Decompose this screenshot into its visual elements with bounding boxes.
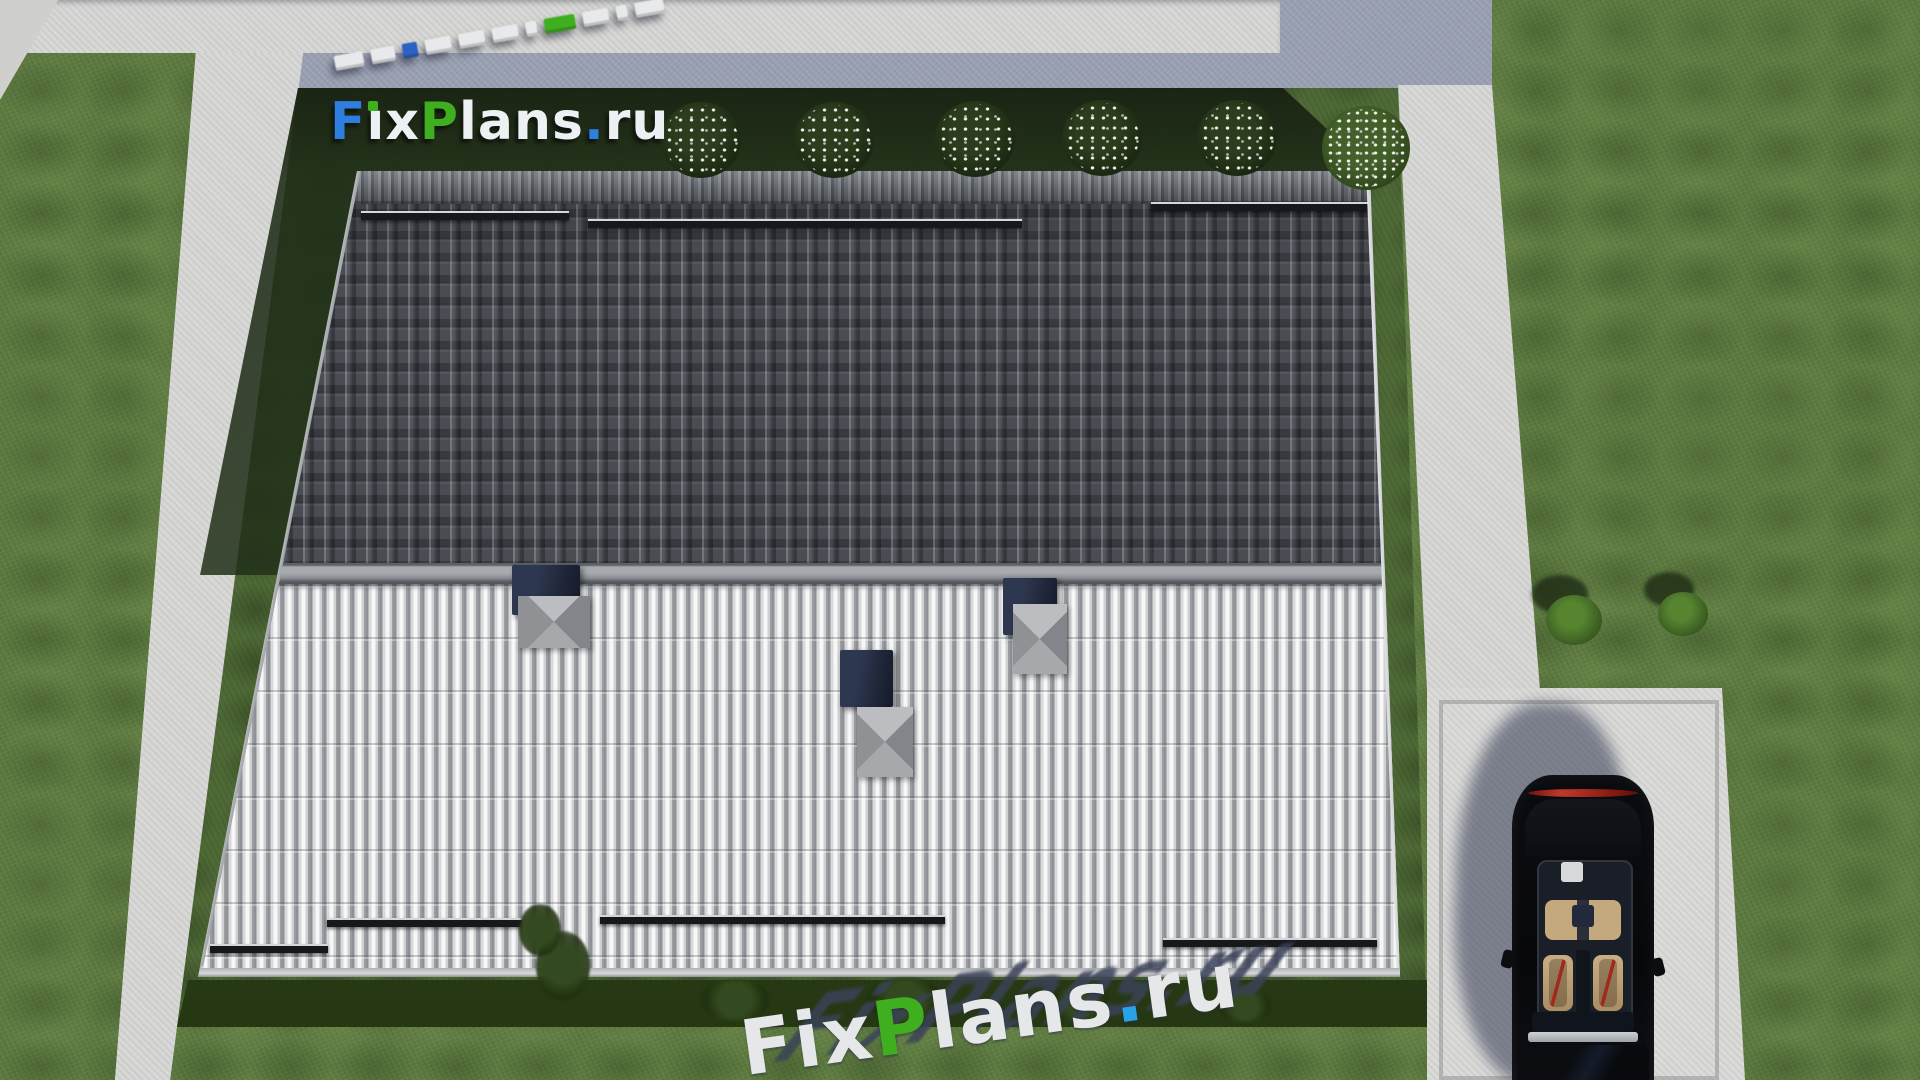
fixplans-logo: FıxPlans.ru: [330, 92, 669, 152]
snow-guard-bar: [361, 211, 569, 220]
house-roof: [198, 171, 1400, 977]
snow-guard-bar: [210, 944, 328, 953]
snow-guard-bar: [588, 219, 1022, 228]
logo-i-dot: [368, 101, 378, 111]
chimney-cap: [1013, 604, 1067, 674]
car-center-console: [1576, 950, 1590, 1020]
watermark-letter-top: [370, 46, 396, 65]
watermark-letter-top: [424, 36, 452, 55]
car-tail-lights: [1528, 789, 1638, 797]
car-front-seat-left: [1543, 955, 1573, 1011]
car-rear-shelf-object: [1561, 862, 1583, 882]
logo-letter: l: [459, 92, 478, 152]
flowering-bush: [661, 102, 741, 178]
watermark-letter-top: [402, 42, 419, 59]
car-front-seat-right: [1593, 955, 1623, 1011]
logo-letter: s: [552, 92, 584, 152]
chimney-cap: [857, 707, 913, 777]
logo-letter: F: [330, 92, 367, 152]
lawn-bush: [1546, 595, 1602, 645]
snow-guard-bar: [600, 915, 945, 924]
watermark-letter-top: [615, 5, 628, 22]
snow-guard-bar: [327, 918, 522, 927]
car-windshield-frame: [1528, 1032, 1638, 1042]
lawn-bush: [1658, 592, 1708, 636]
logo-letter: x: [385, 92, 420, 152]
car-hood: [1517, 1045, 1649, 1080]
snow-guard-bar: [1151, 202, 1381, 211]
logo-letter: P: [420, 92, 459, 152]
hedge-shrub: [519, 904, 561, 956]
logo-letter: .: [584, 92, 605, 152]
logo-letter: a: [478, 92, 514, 152]
watermark-letter-top: [491, 24, 519, 43]
watermark-letter-top: [525, 21, 538, 38]
car-windshield: [1532, 1012, 1634, 1032]
flowering-bush: [935, 101, 1015, 177]
car-rear-deck: [1525, 799, 1641, 857]
flowering-bush: [794, 102, 874, 178]
logo-letter: ı: [367, 92, 386, 152]
chimney-cap: [518, 596, 590, 648]
flowering-bush: [1322, 106, 1410, 190]
car: [1455, 695, 1755, 1080]
watermark-letter-top: [582, 8, 610, 27]
flowering-bush: [1197, 100, 1277, 176]
watermark-letter-top: [458, 30, 486, 49]
logo-letter: u: [631, 92, 669, 152]
flowering-bush: [1062, 100, 1142, 176]
aerial-house-render: FıxPlans.ru FixPlans.ru FixPlans.ru: [0, 0, 1920, 1080]
chimney: [840, 650, 893, 707]
car-armrest: [1572, 905, 1594, 927]
roof-upper-slope: [198, 171, 1400, 566]
logo-letter: n: [514, 92, 552, 152]
roof-top-gutter: [198, 171, 1400, 204]
roof-ridge: [198, 563, 1400, 584]
logo-letter: r: [605, 92, 632, 152]
